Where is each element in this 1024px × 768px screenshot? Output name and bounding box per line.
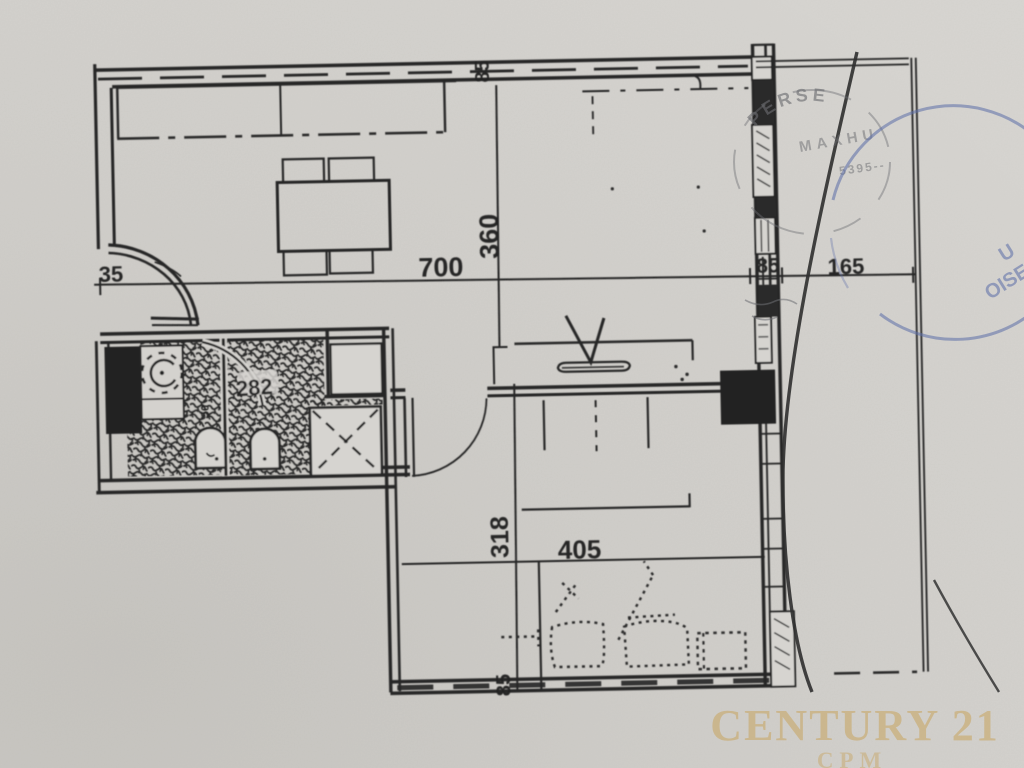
svg-text:360: 360 — [474, 213, 505, 259]
svg-text:700: 700 — [418, 252, 464, 283]
svg-text:85: 85 — [493, 674, 515, 697]
svg-text:CPM: CPM — [817, 748, 887, 768]
svg-text:318: 318 — [486, 516, 515, 558]
svg-text:165: 165 — [827, 254, 864, 280]
svg-text:405: 405 — [558, 534, 602, 565]
svg-text:85: 85 — [472, 60, 494, 83]
svg-text:282: 282 — [235, 374, 273, 402]
svg-text:50: 50 — [200, 405, 212, 417]
svg-text:CENTURY 21: CENTURY 21 — [710, 701, 999, 750]
svg-text:35: 35 — [98, 262, 123, 287]
